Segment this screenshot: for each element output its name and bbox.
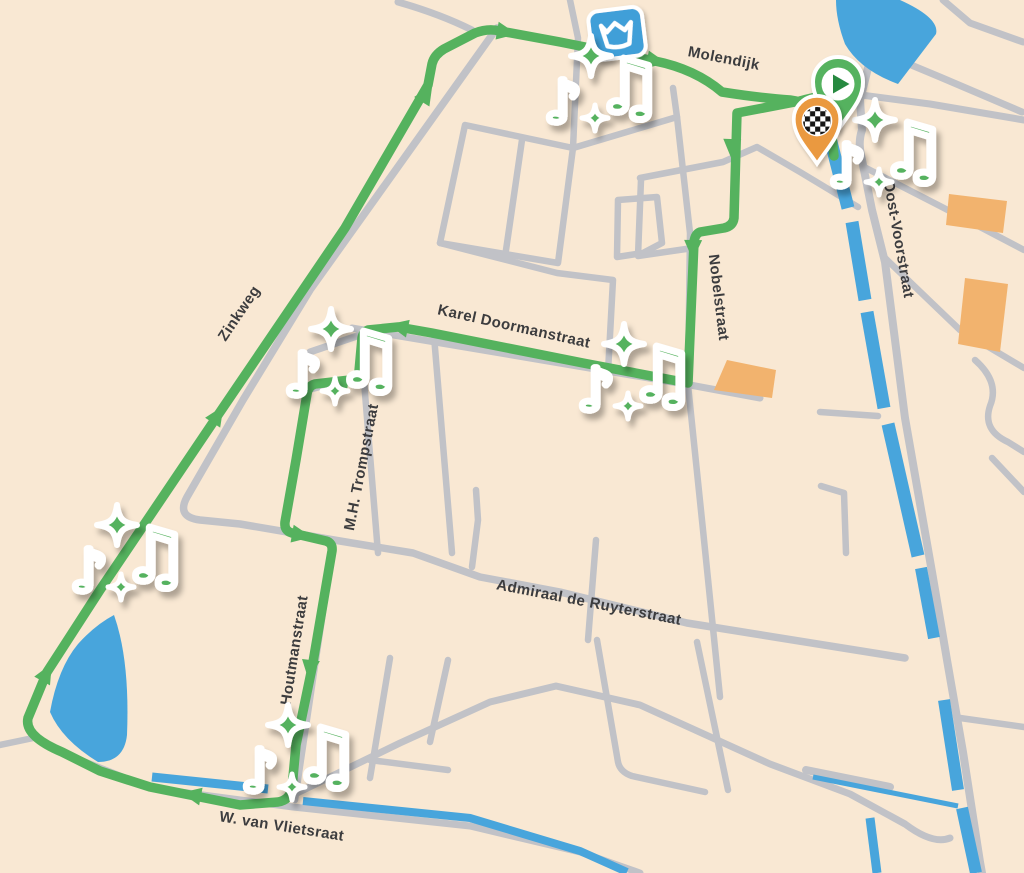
music-notes-icon bbox=[241, 705, 359, 805]
route-map: ♪ ♫ bbox=[0, 0, 1024, 873]
street-label-zinkweg: Zinkweg bbox=[215, 283, 264, 345]
music-notes-icon bbox=[70, 505, 188, 605]
street-label-nobelstraat: Nobelstraat bbox=[705, 253, 732, 341]
checkered-flag-icon bbox=[803, 107, 831, 135]
building-orange-2 bbox=[958, 278, 1008, 352]
music-notes-icon bbox=[577, 324, 695, 424]
music-notes-icon bbox=[544, 36, 662, 136]
music-notes-icon bbox=[284, 309, 402, 409]
map-canvas: ♪ ♫ bbox=[0, 0, 1024, 873]
pond-water bbox=[50, 615, 127, 762]
street-label-molendijk: Molendijk bbox=[687, 43, 762, 74]
building-orange-1 bbox=[946, 194, 1007, 233]
